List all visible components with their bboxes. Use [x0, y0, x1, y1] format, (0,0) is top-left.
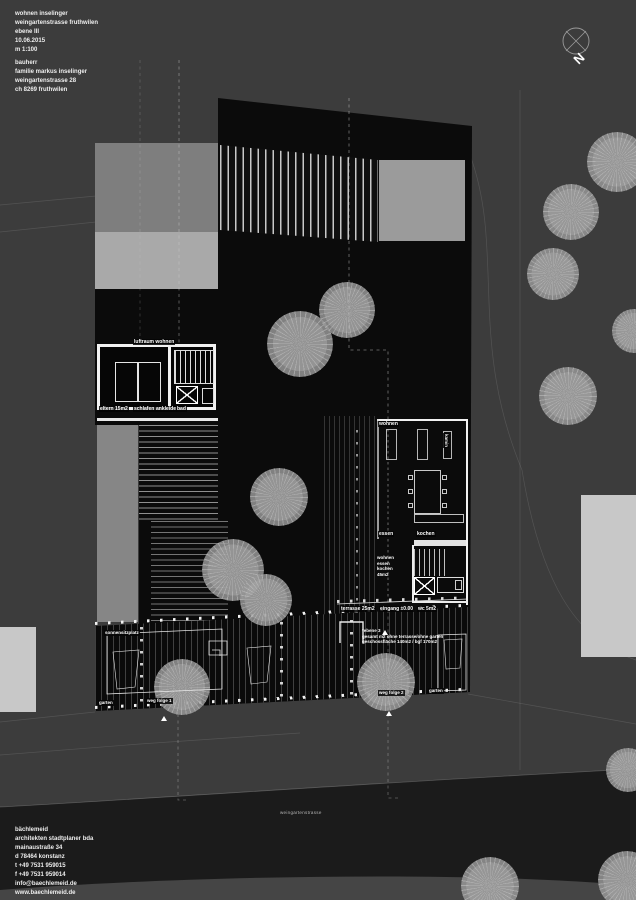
floor-note: *ebene 3 gesamt m2 ohne terrasse/ohne ga…	[362, 628, 443, 645]
site-label-weg1: weg folge 1	[146, 698, 173, 704]
room-label-kamin: kamin	[443, 433, 449, 448]
site-label-weg2: weg folge 2	[378, 690, 405, 696]
title-line-street: weingartenstrasse fruthwilen	[15, 19, 98, 28]
area-stack-line: wohnen	[377, 555, 394, 561]
entry-marker-left	[161, 716, 167, 721]
firm-city: d 78464 konstanz	[15, 853, 93, 862]
client-line-name: familie markus inselinger	[15, 68, 87, 77]
title-line-level: ebene III	[15, 28, 98, 37]
street-name-label: weingartenstrasse	[280, 810, 322, 815]
room-label-kochen: kochen	[416, 531, 436, 537]
firm-block: bächlemeid architekten stadtplaner bda m…	[15, 826, 93, 898]
room-label-wc: wc 5m2	[417, 606, 437, 612]
room-label-wohnen: wohnen	[378, 421, 399, 427]
client-line-street: weingartenstrasse 28	[15, 77, 87, 86]
site-plan-sheet: luftraum wohnen eltern 15m2 schlafen ank…	[0, 0, 636, 900]
site-label-garten-left: garten	[98, 700, 114, 706]
entry-marker-right	[386, 711, 392, 716]
client-line-city: ch 8269 fruthwilen	[15, 86, 87, 95]
floor-note-line: geschossfläche 140m2 / bgf 170m2	[362, 639, 443, 645]
room-label-schlafen: schlafen	[133, 406, 155, 412]
room-label-luftraum: luftraum wohnen	[133, 339, 175, 345]
room-label-eltern: eltern 15m2	[99, 406, 129, 412]
title-block: wohnen inselinger weingartenstrasse frut…	[15, 10, 98, 55]
axis-dashed-lines	[140, 60, 398, 800]
area-stack-line: 45m2	[377, 572, 394, 578]
room-label-ankleide: ankleide	[155, 406, 177, 412]
client-block: bauherr familie markus inselinger weinga…	[15, 59, 87, 95]
firm-name: bächlemeid	[15, 826, 93, 835]
room-label-essen: essen	[378, 531, 394, 537]
firm-role: architekten stadtplaner bda	[15, 835, 93, 844]
room-label-terrasse: terrasse 25m2	[340, 606, 376, 612]
room-label-eingang: eingang ±0.00	[379, 606, 414, 612]
area-stack-line: kochen	[377, 566, 394, 572]
site-label-garten-right: garten	[428, 688, 444, 694]
title-line-date: 10.06.2015	[15, 37, 98, 46]
pergola-white-linework	[107, 599, 468, 694]
area-stack-label: wohnen essen kochen 45m2	[377, 555, 394, 577]
annotation-linework	[0, 0, 636, 900]
client-heading: bauherr	[15, 59, 87, 68]
site-label-sitzplatz: sonnensitzplatz	[104, 630, 140, 636]
firm-website: www.baechlemeid.de	[15, 889, 93, 898]
firm-phone: t +49 7531 959015	[15, 862, 93, 871]
firm-email: info@baechlemeid.de	[15, 880, 93, 889]
title-line-scale: m 1:100	[15, 46, 98, 55]
room-label-bad: bad	[176, 406, 187, 412]
title-line-project: wohnen inselinger	[15, 10, 98, 19]
firm-street: mainaustraße 34	[15, 844, 93, 853]
firm-fax: f +49 7531 959014	[15, 871, 93, 880]
